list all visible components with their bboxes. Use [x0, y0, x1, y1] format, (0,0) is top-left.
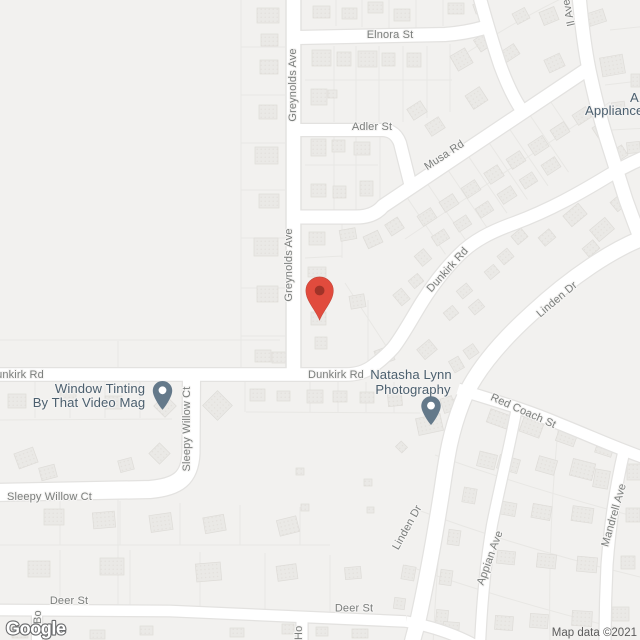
svg-text:Ho: Ho	[293, 626, 305, 640]
svg-text:Photography: Photography	[375, 382, 451, 397]
svg-text:Map data ©2021: Map data ©2021	[552, 627, 637, 639]
svg-text:Natasha Lynn: Natasha Lynn	[370, 367, 452, 382]
svg-text:Greynolds Ave: Greynolds Ave	[287, 48, 299, 121]
svg-text:Elnora St: Elnora St	[367, 29, 414, 41]
svg-text:Appliance: Appliance	[585, 103, 640, 118]
svg-text:Dunkirk Rd: Dunkirk Rd	[0, 369, 44, 381]
svg-text:Sleepy Willow Ct: Sleepy Willow Ct	[7, 491, 92, 503]
svg-text:Greynolds Ave: Greynolds Ave	[283, 228, 295, 301]
svg-text:Adler St: Adler St	[352, 121, 392, 133]
svg-text:Dunkirk Rd: Dunkirk Rd	[308, 369, 364, 381]
svg-text:Google: Google	[6, 619, 66, 639]
svg-text:By That Video Mag: By That Video Mag	[33, 395, 146, 410]
svg-text:Sleepy Willow Ct: Sleepy Willow Ct	[181, 387, 193, 472]
svg-text:Deer St: Deer St	[50, 595, 88, 607]
svg-text:Deer St: Deer St	[335, 603, 373, 615]
svg-text:Window Tinting: Window Tinting	[55, 381, 145, 396]
